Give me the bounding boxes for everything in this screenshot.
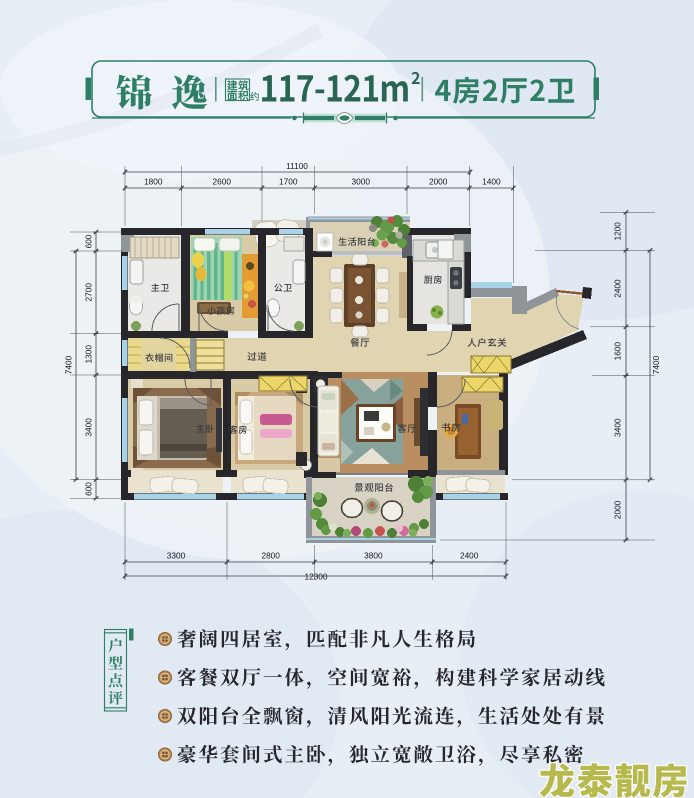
svg-text:600: 600	[84, 234, 94, 248]
svg-text:3800: 3800	[364, 551, 383, 561]
svg-text:1600: 1600	[613, 342, 623, 361]
svg-text:3000: 3000	[352, 177, 371, 187]
svg-text:2400: 2400	[460, 551, 479, 561]
svg-text:1400: 1400	[482, 177, 501, 187]
svg-text:2600: 2600	[213, 177, 232, 187]
svg-text:2800: 2800	[261, 551, 280, 561]
svg-text:7400: 7400	[651, 355, 661, 374]
svg-text:2000: 2000	[429, 177, 448, 187]
svg-text:11100: 11100	[286, 161, 308, 171]
svg-text:3300: 3300	[167, 551, 186, 561]
svg-text:2000: 2000	[613, 500, 623, 519]
svg-text:2400: 2400	[613, 279, 623, 298]
svg-text:3400: 3400	[84, 418, 94, 437]
svg-text:2700: 2700	[84, 283, 94, 302]
svg-text:1700: 1700	[279, 177, 298, 187]
svg-text:3400: 3400	[613, 418, 623, 437]
svg-text:1200: 1200	[613, 222, 623, 241]
svg-text:7400: 7400	[64, 355, 74, 374]
svg-text:12300: 12300	[304, 572, 327, 582]
svg-text:1800: 1800	[144, 177, 163, 187]
svg-text:600: 600	[84, 482, 94, 496]
svg-text:1300: 1300	[84, 345, 94, 364]
